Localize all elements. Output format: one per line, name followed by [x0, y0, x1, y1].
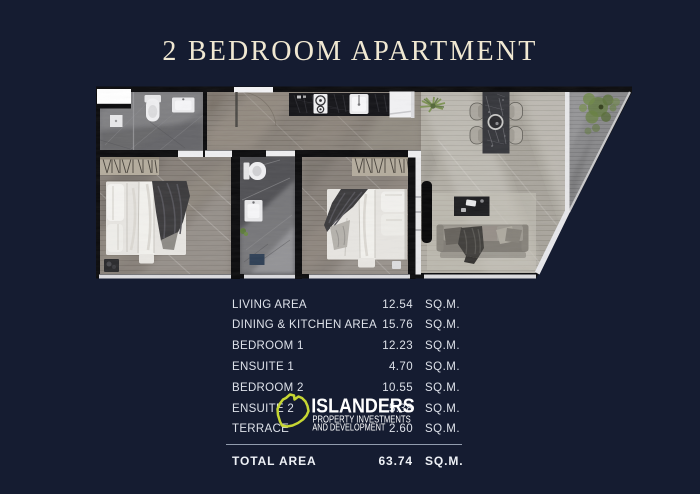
- svg-text:AND DEVELOPMENT: AND DEVELOPMENT: [312, 422, 385, 433]
